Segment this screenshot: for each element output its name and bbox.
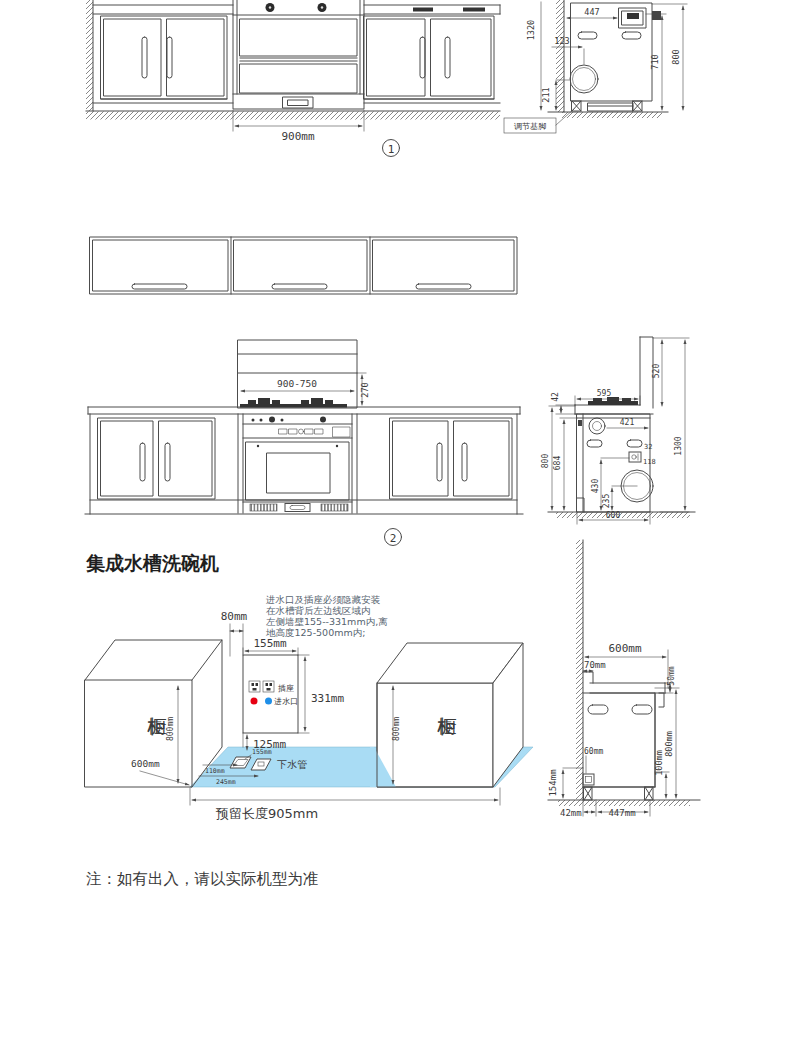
install-note-line1: 进水口及插座必须隐藏安装 [265,594,381,605]
door-dot [257,445,259,447]
dim-684: 684 [553,456,562,471]
door-handle [140,443,145,481]
vent-slot [588,705,608,714]
door-dot [336,445,338,447]
dim-155mm: 155mm [253,637,286,650]
door-handle [462,443,467,481]
inlet-label: 进水口 [274,697,298,706]
socket-symbols [249,681,274,692]
cold-water-dot [265,698,272,705]
ticks [549,406,577,418]
dim-42mm: 42mm [560,808,582,818]
dim-900mm: 900mm [281,130,314,143]
dim-1320: 1320 [526,20,536,40]
igniter-dot [252,419,255,422]
knob-dot [320,417,326,423]
counter-item [463,8,485,12]
dim-42: 42 [551,392,560,402]
depth-arrow [140,771,189,785]
dim-447: 447 [584,7,599,17]
counter-slab [575,405,653,414]
dim-331mm: 331mm [311,692,344,705]
drawing1-front-elevation: 900mm 1 [86,0,500,157]
installation-manual-page: 900mm 1 447 123 1320 211 710 800 调节基脚 [0,0,790,1042]
drawing1-side-view: 447 123 1320 211 710 800 调节基脚 [504,0,687,133]
door-handle [167,37,172,78]
door-handle [165,443,170,481]
drain-box-inner [586,777,592,783]
dim-floor-245mm: 245mm [216,778,236,786]
install-note-line3: 左侧墙壁155--331mm内,离 [266,616,388,627]
wall-hatch [556,0,564,112]
vent-slot [632,705,652,714]
counter-item [413,8,433,12]
dim-447mm: 447mm [608,808,635,818]
vent-slot [587,440,602,447]
ticks [556,405,577,414]
dim-800: 800 [671,49,681,64]
feet [584,787,653,800]
socket-pin [632,455,636,459]
drawing2-number: 2 [390,532,397,545]
hot-water-dot [251,698,258,705]
vent-grille [250,504,277,511]
socket-label: 插座 [278,684,294,693]
drain-label: 下水管 [277,759,307,770]
vent-slot [622,32,641,39]
dim-118: 118 [643,458,656,466]
door-handle [445,37,450,78]
dim-430: 430 [591,479,600,494]
counter-profile [583,672,665,707]
base-cabinets [85,414,523,514]
dim-123: 123 [554,36,569,46]
dim-270: 270 [360,382,370,397]
dim-520: 520 [652,364,661,379]
rear-connector [652,11,661,20]
cabinet-handle [416,284,471,289]
dim-595: 595 [597,389,612,398]
section-title: 集成水槽洗碗机 [85,552,219,574]
cooktop-side-profile [588,401,638,405]
hinge-block [578,420,582,426]
built-in-appliance [233,0,364,109]
built-in-oven [238,414,357,513]
floor-hatch [562,112,662,118]
knob-mark [269,6,271,8]
ext-lines [190,788,500,805]
ext-lines [230,624,243,656]
range-hood [238,340,357,408]
dim-800: 800 [541,454,550,469]
door-handle [437,443,442,481]
drain-hole [570,65,598,93]
knob-mark [321,6,323,8]
socket-pins [266,683,273,691]
floor-hatch [556,512,690,518]
oven-buttons [279,427,350,437]
vent-slot [627,440,642,447]
dim-reserved-905mm: 预留长度905mm [215,806,318,821]
footer-note: 注：如有出入，请以实际机型为准 [86,870,319,888]
drain-hole-inner [573,68,596,91]
dim-1300: 1300 [674,436,683,455]
cabinet-handle [132,284,187,289]
dim-32: 32 [644,443,652,451]
vent-slot [578,32,597,39]
dim-800mm-left: 800mm [166,717,175,741]
control-display [627,13,639,19]
installation-diagram: 900mm 1 447 123 1320 211 710 800 调节基脚 [0,0,790,1042]
floor-hatch [86,112,500,120]
drawing3-plan-view: 橱柜 800mm 600mm 80mm 155mm 331mm 插座 进水口 1… [85,610,533,821]
cabinet-body [577,414,650,512]
oven-dial [299,429,304,434]
wall-hatch [576,540,583,800]
drain-box [583,774,594,785]
feet [572,101,642,111]
igniter-dot [281,419,284,422]
dim-600mm-depth: 600mm [608,642,641,655]
plinth-handle [285,504,310,512]
dim-211: 211 [541,87,551,102]
wall-cabinets [90,237,517,294]
plinth-handle-inner [290,506,305,510]
drawing2-front-elevation: 900-750 270 2 [85,237,523,546]
dim-154mm: 154mm [548,769,558,796]
burners [248,398,333,404]
cabinet-handle [272,284,327,289]
wall-hatch [86,0,93,111]
dim-60mm: 60mm [584,747,603,756]
install-note-line2: 在水槽背后左边线区域内 [266,605,371,616]
socket-box [629,452,641,462]
socket-pins [252,683,259,691]
right-cabinet [364,16,494,99]
dim-900-750: 900-750 [277,378,317,389]
dim-50mm: 50mm [667,666,676,685]
door-handle [142,37,147,78]
left-cabinet [101,16,227,99]
dim-floor-155mm: 155mm [252,748,272,756]
dim-800mm-right: 800mm [392,717,401,741]
recess-area [243,655,298,733]
drawing2-side-view: 520 1300 595 42 421 32 118 430 235 800 6… [541,337,695,524]
cooktop-profile [240,404,347,408]
dim-100mm: 100mm [654,750,664,776]
gas-valve-inner [593,422,602,431]
feet-label: 调节基脚 [514,122,546,131]
dim-600: 600 [606,511,621,520]
dim-70mm: 70mm [584,660,606,670]
dim-floor-110mm: 110mm [205,767,225,775]
dim-600mm: 600mm [131,758,160,769]
dishwasher-body [583,693,655,787]
knob-dot [269,417,275,423]
dim-421: 421 [620,418,635,427]
igniter-dot [260,419,263,422]
left-cabinet-label: 橱柜 [148,717,168,736]
dim-235: 235 [602,494,611,509]
drawing1-number: 1 [388,143,395,156]
floor-hatch [558,800,690,806]
ext-lines [298,655,309,733]
dim-800mm-body: 800mm [664,731,674,757]
gas-valve [589,418,605,434]
dim-80mm: 80mm [221,610,248,623]
vent-grille [321,504,348,511]
countertop-lines [93,5,500,103]
door-handle [420,37,425,78]
drawing3-side-view: 600mm 70mm 50mm 60mm 800mm 100mm 154mm 4… [548,540,700,818]
dim-710: 710 [650,54,660,69]
